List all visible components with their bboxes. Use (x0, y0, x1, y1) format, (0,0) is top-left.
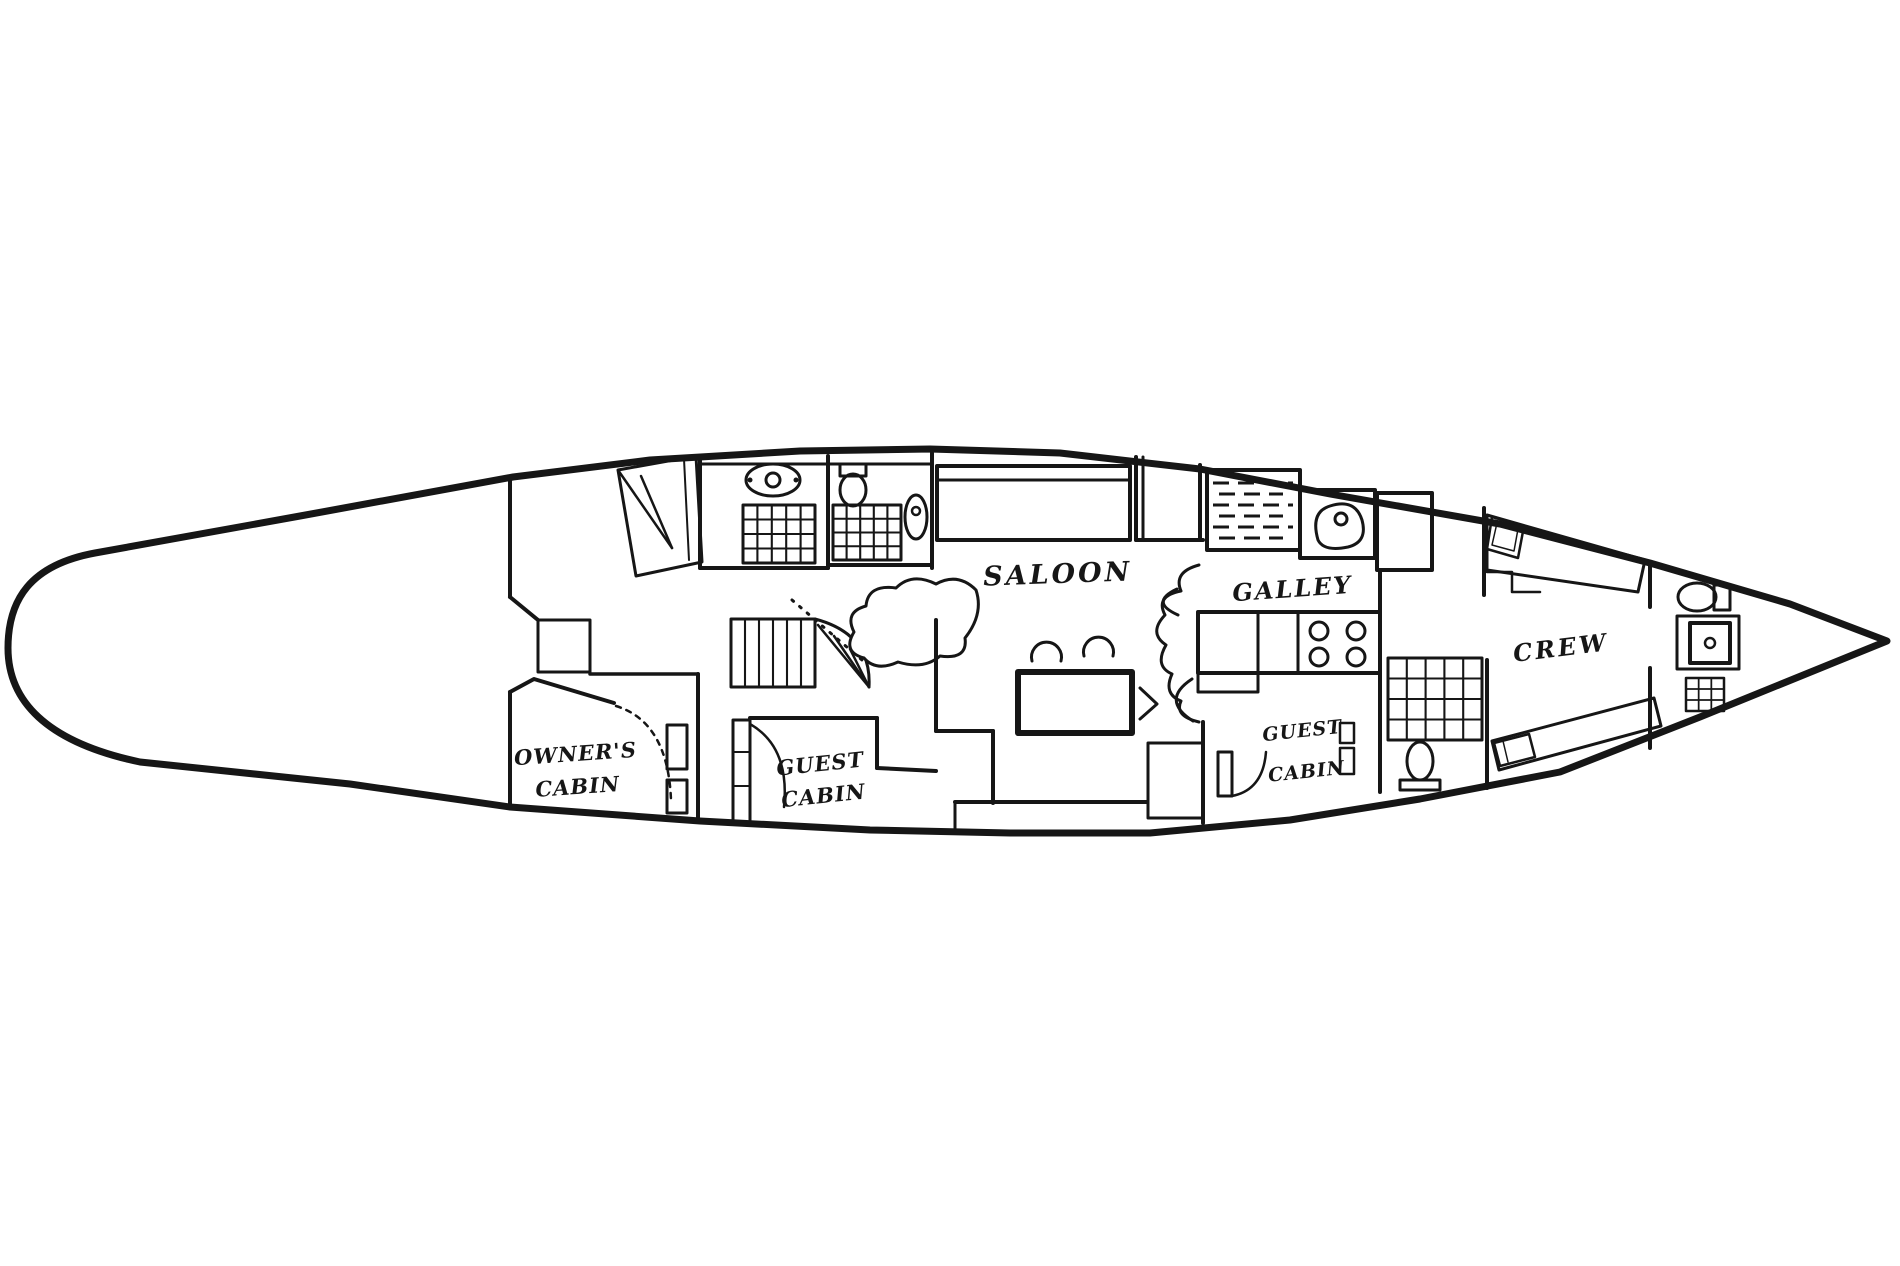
label-galley: GALLEY (1231, 570, 1354, 607)
guest-cabin-jog-wall (877, 768, 936, 771)
sink-tap-right (794, 478, 799, 483)
aft-bulkhead-step (510, 597, 538, 620)
owners-cabin-front-wall (510, 679, 614, 703)
guest-door-louvered (733, 720, 750, 822)
label-guest-cabin-starboard: GUESTCABIN (1261, 716, 1348, 787)
saloon-table (1018, 672, 1132, 733)
sink-tap-left (748, 478, 753, 483)
crew-pillow-lower-line (1503, 741, 1508, 762)
washbasin-icon (905, 495, 927, 539)
saloon-chair-2 (1084, 637, 1114, 656)
owners-door-frame-1 (667, 725, 687, 769)
stove-burner-1 (1310, 622, 1328, 640)
crew-toilet-icon (1407, 742, 1433, 780)
sink-drain (766, 473, 780, 487)
label-crew: CREW (1511, 627, 1610, 668)
owners-berth-edge (684, 459, 689, 560)
saloon-settee (937, 466, 1130, 540)
engine-box (850, 579, 979, 666)
toilet-icon (840, 474, 866, 506)
galley-counter-ext (1198, 673, 1258, 692)
label-guest-cabin-port: GUESTCABIN (775, 746, 869, 812)
aft-locker (538, 620, 590, 672)
crew-toilet-base (1400, 780, 1440, 790)
floorplan-canvas: SALOONGALLEYCREWOWNER'SCABINGUESTCABINGU… (0, 0, 1900, 1266)
stove-burner-4 (1347, 648, 1365, 666)
yacht-floorplan: SALOONGALLEYCREWOWNER'SCABINGUESTCABINGU… (0, 0, 1900, 1266)
forepeak-shower-inner (1690, 623, 1730, 663)
forepeak-toilet-icon (1678, 583, 1716, 611)
stove-burner-3 (1310, 648, 1328, 666)
saloon-chair-1 (1032, 642, 1062, 661)
saloon-chair-3 (1140, 688, 1157, 719)
starboard-door (1218, 752, 1232, 796)
starboard-seat (1148, 743, 1203, 818)
sink-icon (746, 464, 800, 496)
galley-sink-drain (1335, 513, 1347, 525)
label-owners-cabin: OWNER'SCABIN (513, 737, 640, 803)
crew-berth-lower (1492, 698, 1661, 770)
forepeak-shower-drain (1705, 638, 1715, 648)
label-saloon: SALOON (983, 556, 1133, 592)
washbasin-drain (912, 507, 920, 515)
stove-burner-2 (1347, 622, 1365, 640)
starboard-door-swing (1232, 752, 1266, 796)
